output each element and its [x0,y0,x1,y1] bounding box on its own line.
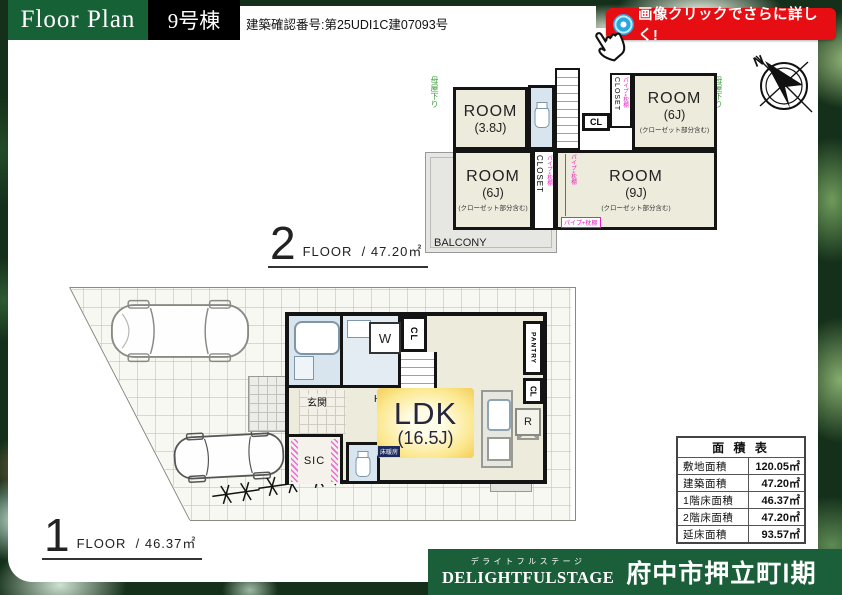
pipe-shelf-vertical: パイプ+枕棚 [565,154,577,216]
first-floor-plan: W CL UP 玄関 HALL SIC LDK (16.5J) 床暖房 [285,312,547,484]
washroom: W [343,316,401,388]
shoe-in-closet: SIC [289,434,343,484]
stove-icon [487,437,511,461]
floorplan-title-box: Floor Plan [8,0,148,40]
badge-label: 画像クリックでさらに詳しく! [638,3,836,45]
closet-strip-mid: CLOSET パイプ+枕棚 [533,150,555,230]
pipe-shelf-horizontal: パイプ+枕棚 [561,217,601,228]
area-table-title: 面 積 表 [678,438,804,457]
refrigerator-space: R [515,408,541,436]
room-6j-upper: ROOM (6J) (クローゼット部分含む) [632,73,717,150]
svg-text:N: N [751,51,766,70]
compass-icon: N [748,48,820,120]
confirmation-strip: 建築確認番号:第25UDI1C建07093号 [240,6,596,40]
table-row: 延床面積 93.57㎡ [678,525,804,542]
building-number-box: 9号棟 [148,0,240,40]
table-row: 建築面積 47.20㎡ [678,474,804,491]
kitchen-counter [481,390,513,468]
stairs-down [555,68,580,150]
closet-cl-kitchen: CL [523,378,543,404]
brand-bar: デライトフルステージ DELIGHTFULSTAGE 府中市押立町Ⅰ期 [428,549,842,595]
room-3-8j: ROOM (3.8J) [453,87,528,150]
closet-strip-top: CLOSET パイプ+枕棚 [610,73,632,128]
project-name: 府中市押立町Ⅰ期 [626,554,816,590]
entrance-genkan: 玄関 [299,390,346,434]
first-floor-label: 1 FLOOR / 46.37㎡ [42,516,202,560]
site-boundary-top [70,287,576,288]
building-number: 9号棟 [168,5,221,35]
room-6j-lower: ROOM (6J) (クローゼット部分含む) [453,150,533,230]
bathtub-icon [294,321,340,355]
room-9j: ROOM (9J) (クローゼット部分含む) パイプ+枕棚 パイプ+枕棚 [555,150,717,230]
toilet-icon [534,106,549,128]
area-table: 面 積 表 敷地面積 120.05㎡ 建築面積 47.20㎡ 1階床面積 46.… [676,436,806,544]
bathroom [289,316,343,388]
shoe-rack-icon [291,439,298,482]
toilet-room-1f [346,442,380,484]
page-title: Floor Plan [21,6,136,34]
washer-space: W [369,322,401,354]
site-boundary-right [575,287,576,521]
brand-logo: DELIGHTFULSTAGE [442,568,614,588]
eaves-note-left: 母屋下り [429,76,440,108]
table-row: 1階床面積 46.37㎡ [678,491,804,508]
toilet-icon [356,455,371,477]
site-boundary-bottom [190,520,576,521]
table-row: 敷地面積 120.05㎡ [678,457,804,474]
pantry: PANTRY [523,321,543,375]
closet-cl-2f: CL [582,113,610,131]
kitchen-sink-icon [487,399,511,431]
washbasin-icon [347,320,371,338]
brand-kana: デライトフルステージ [471,556,586,567]
image-click-badge[interactable]: 画像クリックでさらに詳しく! [606,8,836,40]
table-row: 2階床面積 47.20㎡ [678,508,804,525]
second-floor-plan: 母屋下り 母屋下り BALCONY ROOM (3.8J) DN CL CLOS… [425,60,725,260]
second-floor-label: 2 FLOOR / 47.20㎡ [268,224,428,268]
toilet-room-2f [528,85,555,150]
closet-cl-1f: CL [401,316,427,352]
confirmation-number: 建築確認番号:第25UDI1C建07093号 [240,14,448,33]
floor-heating-tag: 床暖房 [378,446,400,457]
shoe-rack-icon [331,439,338,482]
car-top-view [106,296,254,366]
balcony-label: BALCONY [434,237,487,249]
bath-washplace [294,356,314,380]
flyer-page: Floor Plan 9号棟 建築確認番号:第25UDI1C建07093号 画像… [0,0,842,595]
